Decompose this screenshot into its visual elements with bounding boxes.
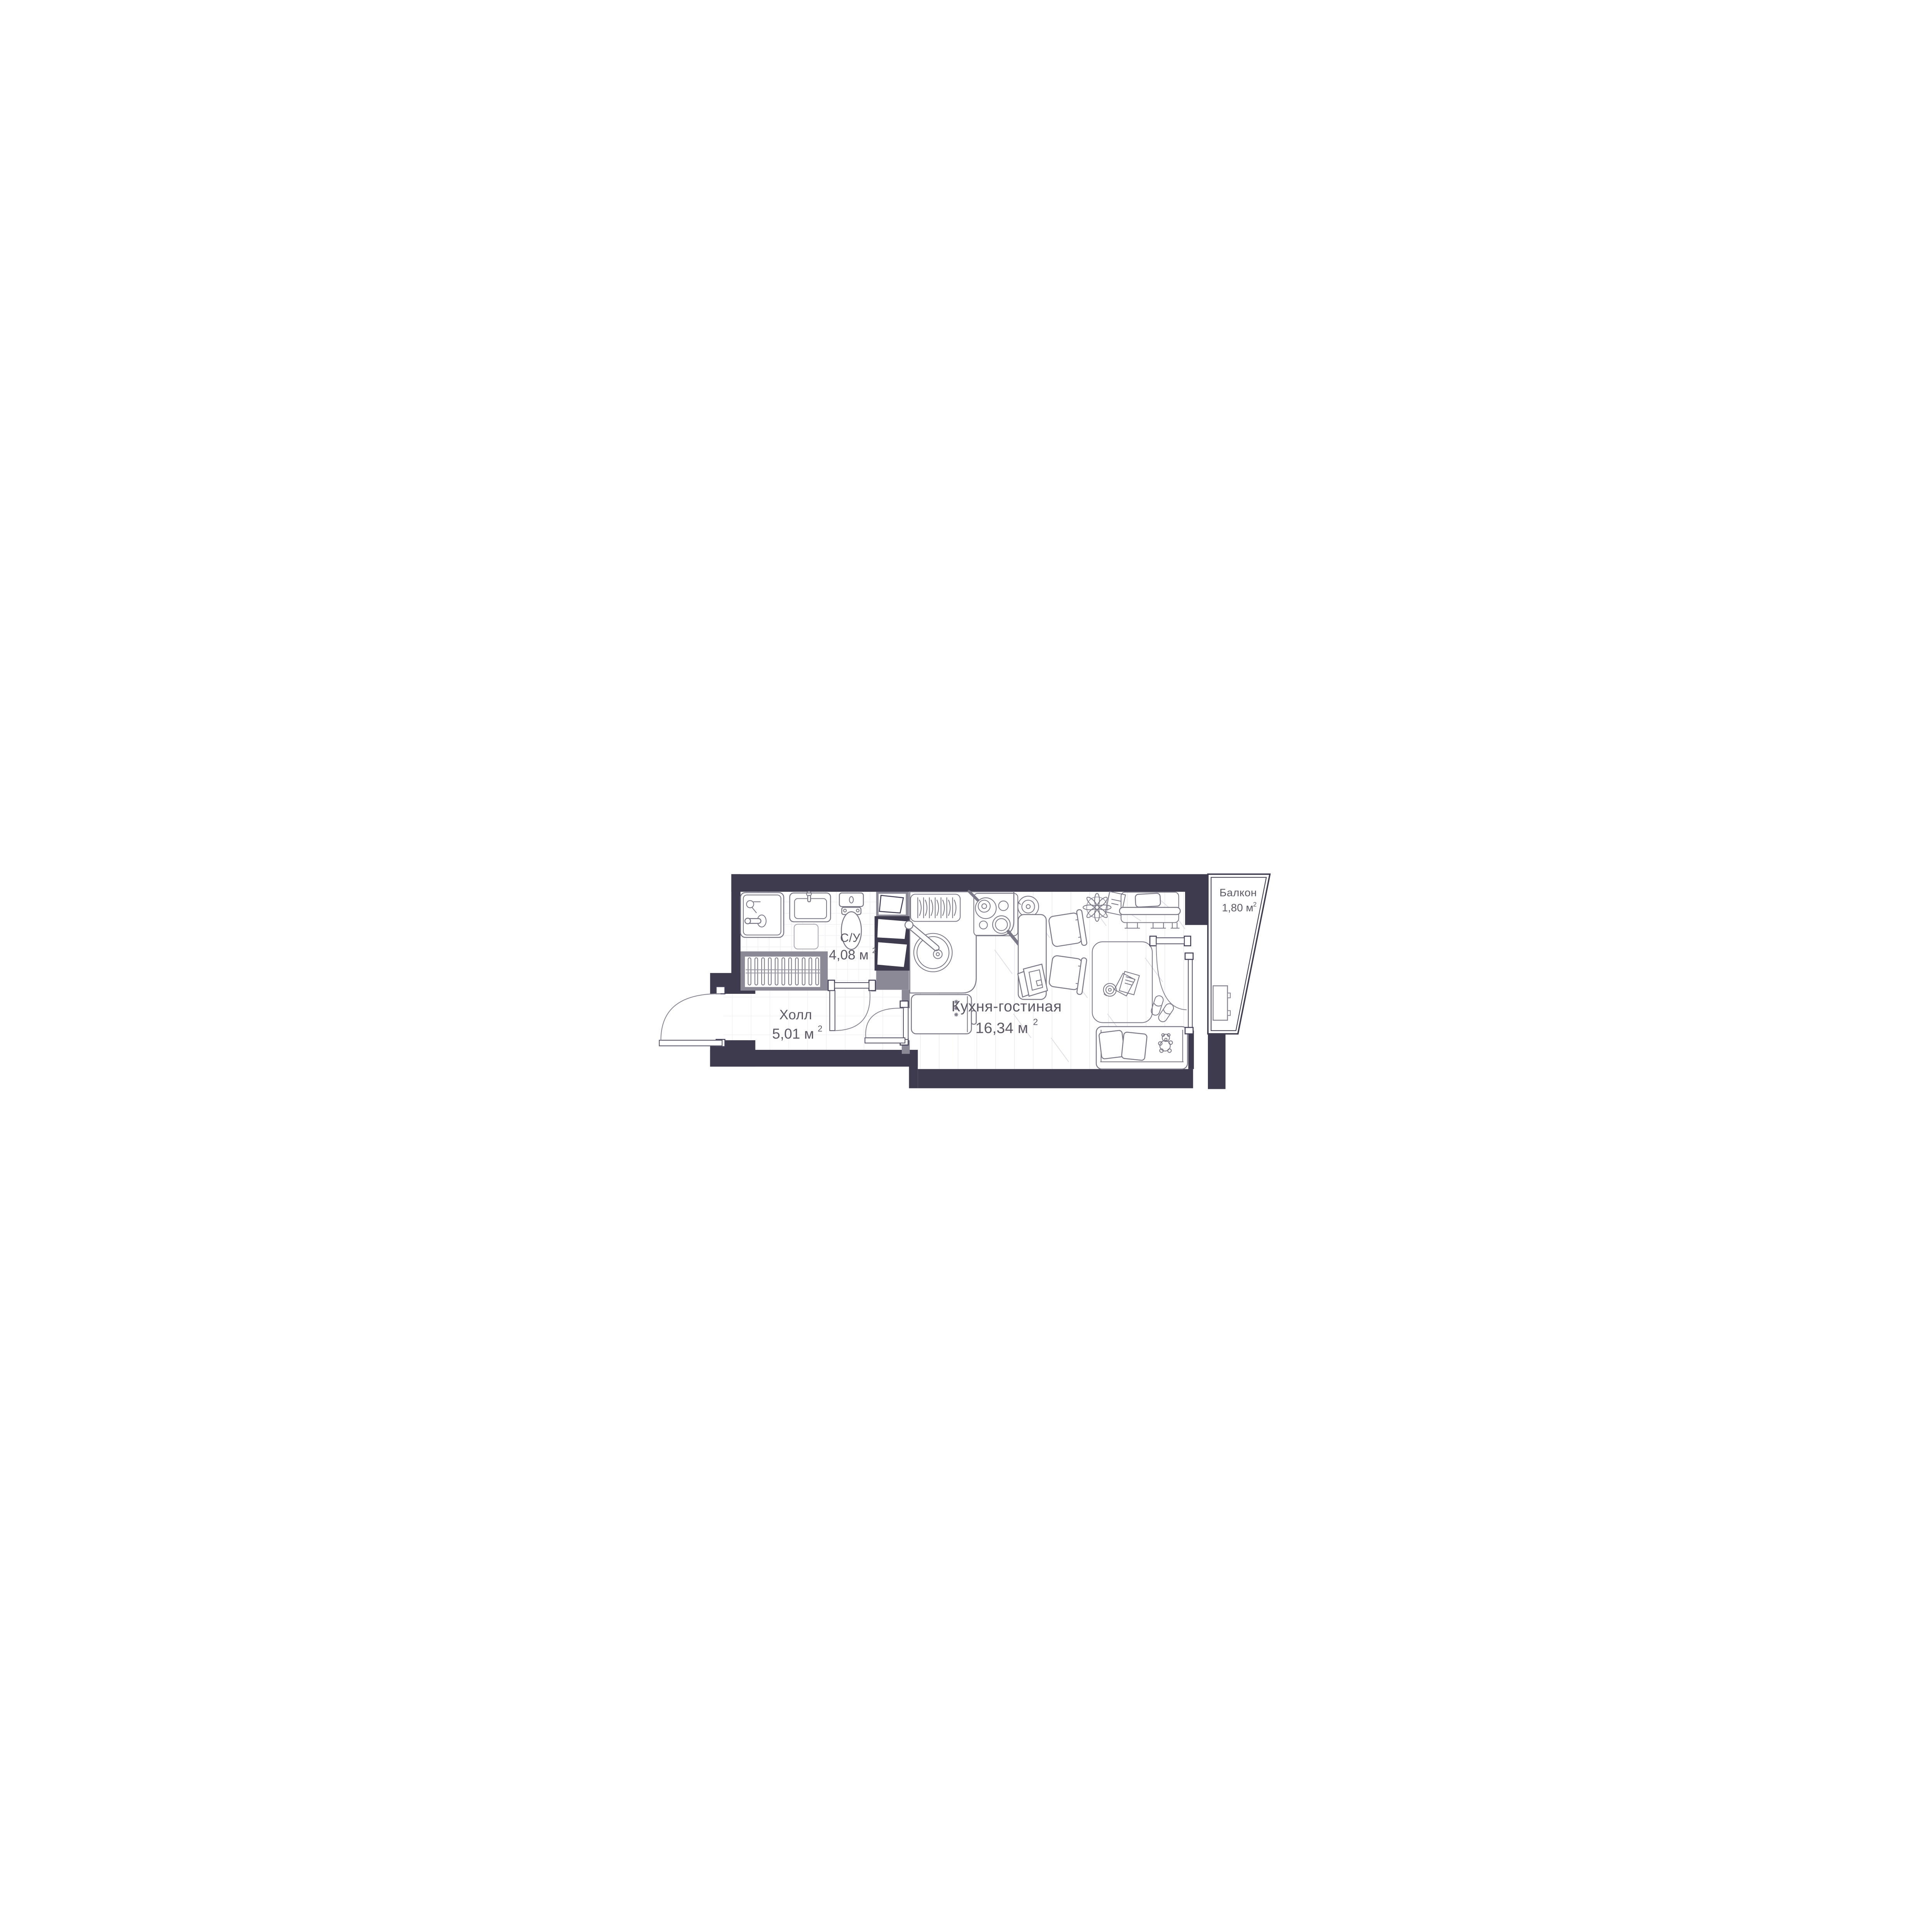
hall-label: Холл [779, 1007, 812, 1022]
bathroom-area: 4,08 м [829, 947, 869, 963]
pillow-icon [1135, 893, 1161, 907]
laundry-shaft-icon [874, 894, 910, 971]
plant-icon [1083, 893, 1111, 921]
balcony-area: 1,80 м [1222, 902, 1253, 914]
floor-plan-page: С/У 4,08 м 2 Холл 5,01 м 2 Кухня-гостина… [0, 0, 1932, 1932]
bathroom-label: С/У [840, 931, 860, 944]
bath-mat-icon [794, 924, 818, 949]
balcony-area-sup: 2 [1253, 901, 1257, 908]
entrance-door-icon [659, 986, 725, 1046]
hall-area-sup: 2 [818, 1024, 822, 1033]
bathroom-area-sup: 2 [872, 946, 877, 955]
balcony-label: Балкон [1219, 886, 1257, 898]
floor-plan: С/У 4,08 м 2 Холл 5,01 м 2 Кухня-гостина… [657, 0, 1275, 1932]
dining-table-icon [1018, 915, 1048, 1000]
washbasin-icon [790, 891, 831, 922]
wardrobe [745, 956, 821, 988]
kitchen-living-area-sup: 2 [1033, 1017, 1038, 1027]
dish-rack-icon [911, 894, 960, 921]
kitchen-living-label: Кухня-гостиная [951, 998, 1062, 1015]
balcony-window-box-icon [1213, 986, 1230, 1020]
bathtub-icon [740, 893, 784, 937]
sofa-icon [1096, 1027, 1187, 1069]
hall-area: 5,01 м [772, 1026, 814, 1042]
kitchen-living-area: 16,34 м [975, 1019, 1028, 1036]
